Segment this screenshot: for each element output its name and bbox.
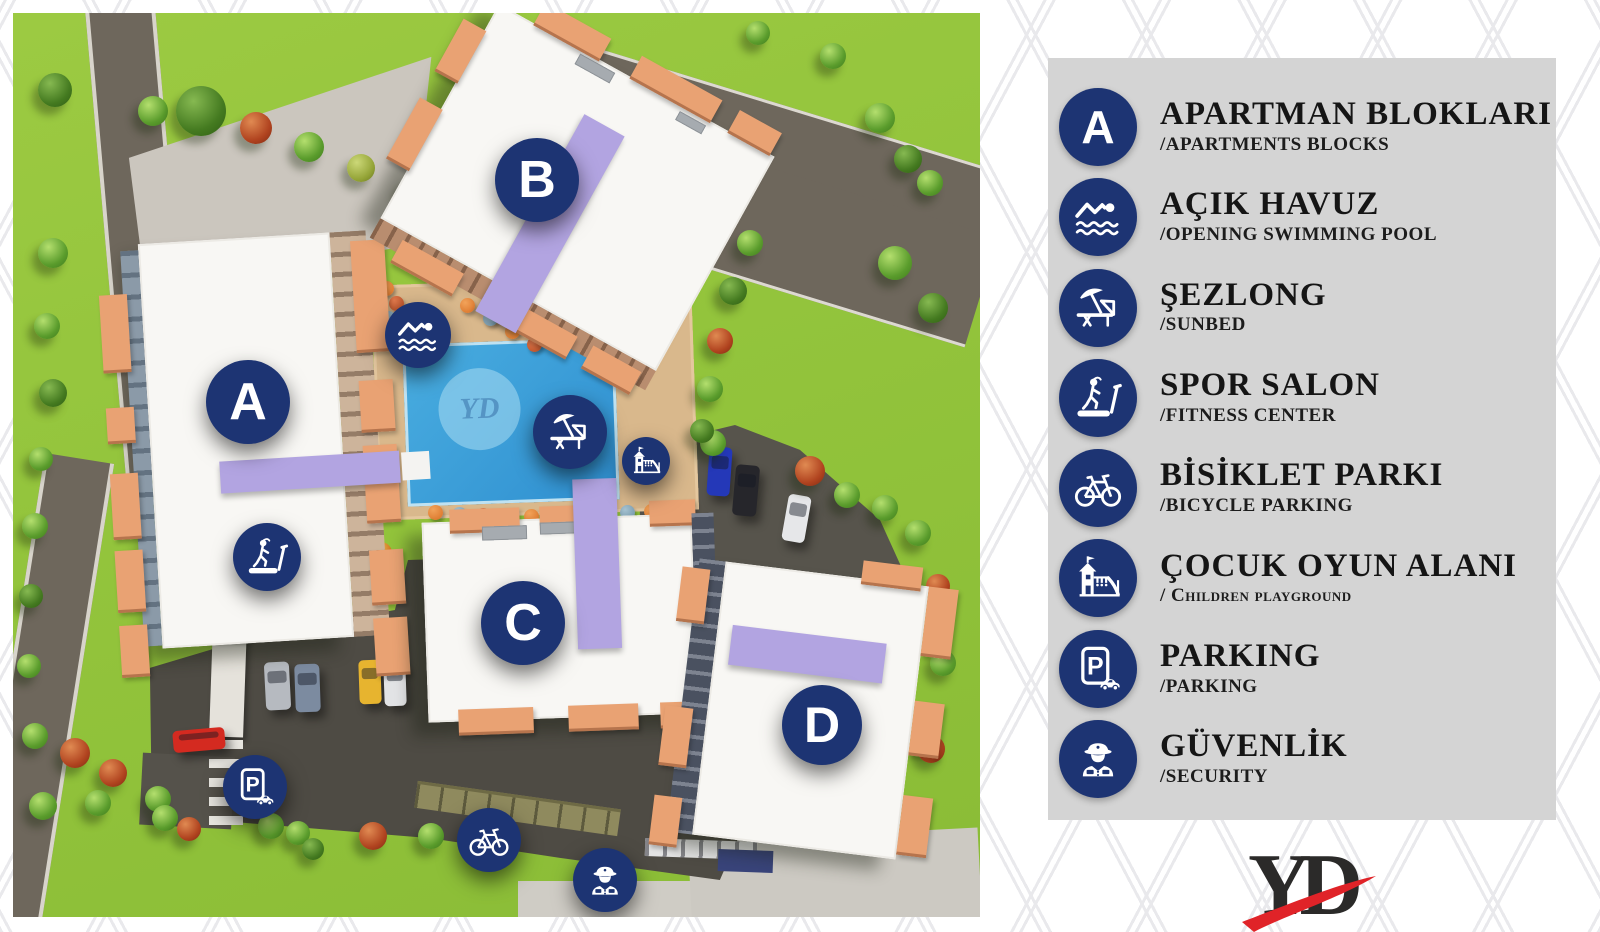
legend-subtitle: /FITNESS CENTER [1160, 405, 1380, 427]
tree [737, 230, 763, 256]
parked-car [264, 661, 291, 710]
tree [795, 456, 825, 486]
block-letter-badge: A [1059, 88, 1137, 166]
parked-car [732, 464, 760, 517]
tree [177, 817, 201, 841]
tree [29, 792, 57, 820]
legend-item-sunbed: ŞEZLONG /SUNBED [1048, 269, 1556, 347]
tree [17, 654, 41, 678]
tree [820, 43, 846, 69]
flower-bush [428, 505, 443, 520]
tree [34, 313, 60, 339]
map-badge-block-b: B [495, 138, 579, 222]
parked-car [172, 727, 226, 753]
legend-item-playground: ÇOCUK OYUN ALANI / Children playground [1048, 539, 1556, 617]
treadmill-icon [1072, 372, 1124, 424]
brand-logo: YD [1240, 838, 1380, 932]
legend-letter: A [1081, 104, 1114, 150]
legend-panel: A APARTMAN BLOKLARI /APARTMENTS BLOCKS A… [1048, 58, 1556, 820]
block-a-label: A [229, 376, 267, 428]
swimmer-icon [1073, 192, 1123, 242]
map-marker-pool [385, 302, 451, 368]
bicycle-icon [467, 818, 511, 862]
tree [294, 132, 324, 162]
legend-title: AÇIK HAVUZ [1160, 188, 1437, 222]
pool-watermark-text: YD [459, 391, 500, 426]
tree [697, 376, 723, 402]
tree [894, 145, 922, 173]
legend-title: APARTMAN BLOKLARI [1160, 98, 1552, 132]
map-marker-playground [622, 437, 670, 485]
tree [38, 73, 72, 107]
block-b-label: B [518, 154, 556, 206]
tree [22, 723, 48, 749]
sunbed-icon [546, 408, 594, 456]
legend-subtitle: / Children playground [1160, 585, 1517, 607]
map-marker-sunbed [533, 395, 607, 469]
tree [38, 238, 68, 268]
legend-subtitle: /APARTMENTS BLOCKS [1160, 134, 1552, 156]
tree [707, 328, 733, 354]
legend-title: GÜVENLİK [1160, 730, 1348, 764]
sunbed-icon [1072, 282, 1124, 334]
legend-subtitle: /BICYCLE PARKING [1160, 495, 1443, 517]
legend-item-bicycle: BİSİKLET PARKI /BICYCLE PARKING [1048, 449, 1556, 527]
parking-sign-icon [233, 765, 277, 809]
map-badge-block-a: A [206, 360, 290, 444]
treadmill-icon [244, 534, 290, 580]
yd-logo-icon: YD [1240, 838, 1380, 932]
flower-bush [460, 298, 475, 313]
legend-item-apartments: A APARTMAN BLOKLARI /APARTMENTS BLOCKS [1048, 88, 1556, 166]
swimmer-icon [396, 313, 440, 357]
tree [138, 96, 168, 126]
tree [917, 170, 943, 196]
tree [872, 495, 898, 521]
map-marker-security [573, 848, 637, 912]
tree [834, 482, 860, 508]
security-guard-icon [1072, 733, 1124, 785]
legend-subtitle: /OPENING SWIMMING POOL [1160, 224, 1437, 246]
tree [152, 805, 178, 831]
legend-subtitle: /SUNBED [1160, 314, 1327, 336]
tree [918, 293, 948, 323]
legend-subtitle: /SECURITY [1160, 766, 1348, 788]
security-guard-icon [583, 858, 627, 902]
tree [29, 447, 53, 471]
tree [19, 584, 43, 608]
tree [905, 520, 931, 546]
playground-icon [629, 444, 663, 478]
tree [99, 759, 127, 787]
tree [418, 823, 444, 849]
legend-item-parking: PARKING /PARKING [1048, 630, 1556, 708]
tree [22, 513, 48, 539]
tree [746, 21, 770, 45]
tree [865, 103, 895, 133]
legend-item-security: GÜVENLİK /SECURITY [1048, 720, 1556, 798]
legend-title: PARKING [1160, 640, 1320, 674]
map-badge-block-d: D [782, 685, 862, 765]
map-marker-parking [223, 755, 287, 819]
tree [240, 112, 272, 144]
tree [347, 154, 375, 182]
site-map: YD [13, 13, 980, 917]
map-marker-bicycle [457, 808, 521, 872]
tree [690, 419, 714, 443]
block-c-label: C [504, 597, 542, 649]
legend-item-fitness: SPOR SALON /FITNESS CENTER [1048, 359, 1556, 437]
legend-title: ÇOCUK OYUN ALANI [1160, 550, 1517, 584]
tree [719, 277, 747, 305]
site-plan-page: YD [0, 0, 1600, 932]
tree [85, 790, 111, 816]
map-badge-block-c: C [481, 581, 565, 665]
pool-watermark: YD [437, 367, 522, 452]
gate-booth [718, 849, 774, 873]
legend-title: ŞEZLONG [1160, 279, 1327, 313]
tree [302, 838, 324, 860]
block-d-label: D [804, 700, 840, 750]
tree [878, 246, 912, 280]
tree [39, 379, 67, 407]
legend-title: BİSİKLET PARKI [1160, 459, 1443, 493]
playground-icon [1072, 552, 1124, 604]
legend-item-pool: AÇIK HAVUZ /OPENING SWIMMING POOL [1048, 178, 1556, 256]
tree [176, 86, 226, 136]
parked-car [294, 664, 321, 713]
parking-sign-icon [1072, 643, 1124, 695]
legend-title: SPOR SALON [1160, 369, 1380, 403]
map-marker-fitness [233, 523, 301, 591]
bicycle-icon [1072, 462, 1124, 514]
tree [359, 822, 387, 850]
legend-subtitle: /PARKING [1160, 676, 1320, 698]
tree [60, 738, 90, 768]
